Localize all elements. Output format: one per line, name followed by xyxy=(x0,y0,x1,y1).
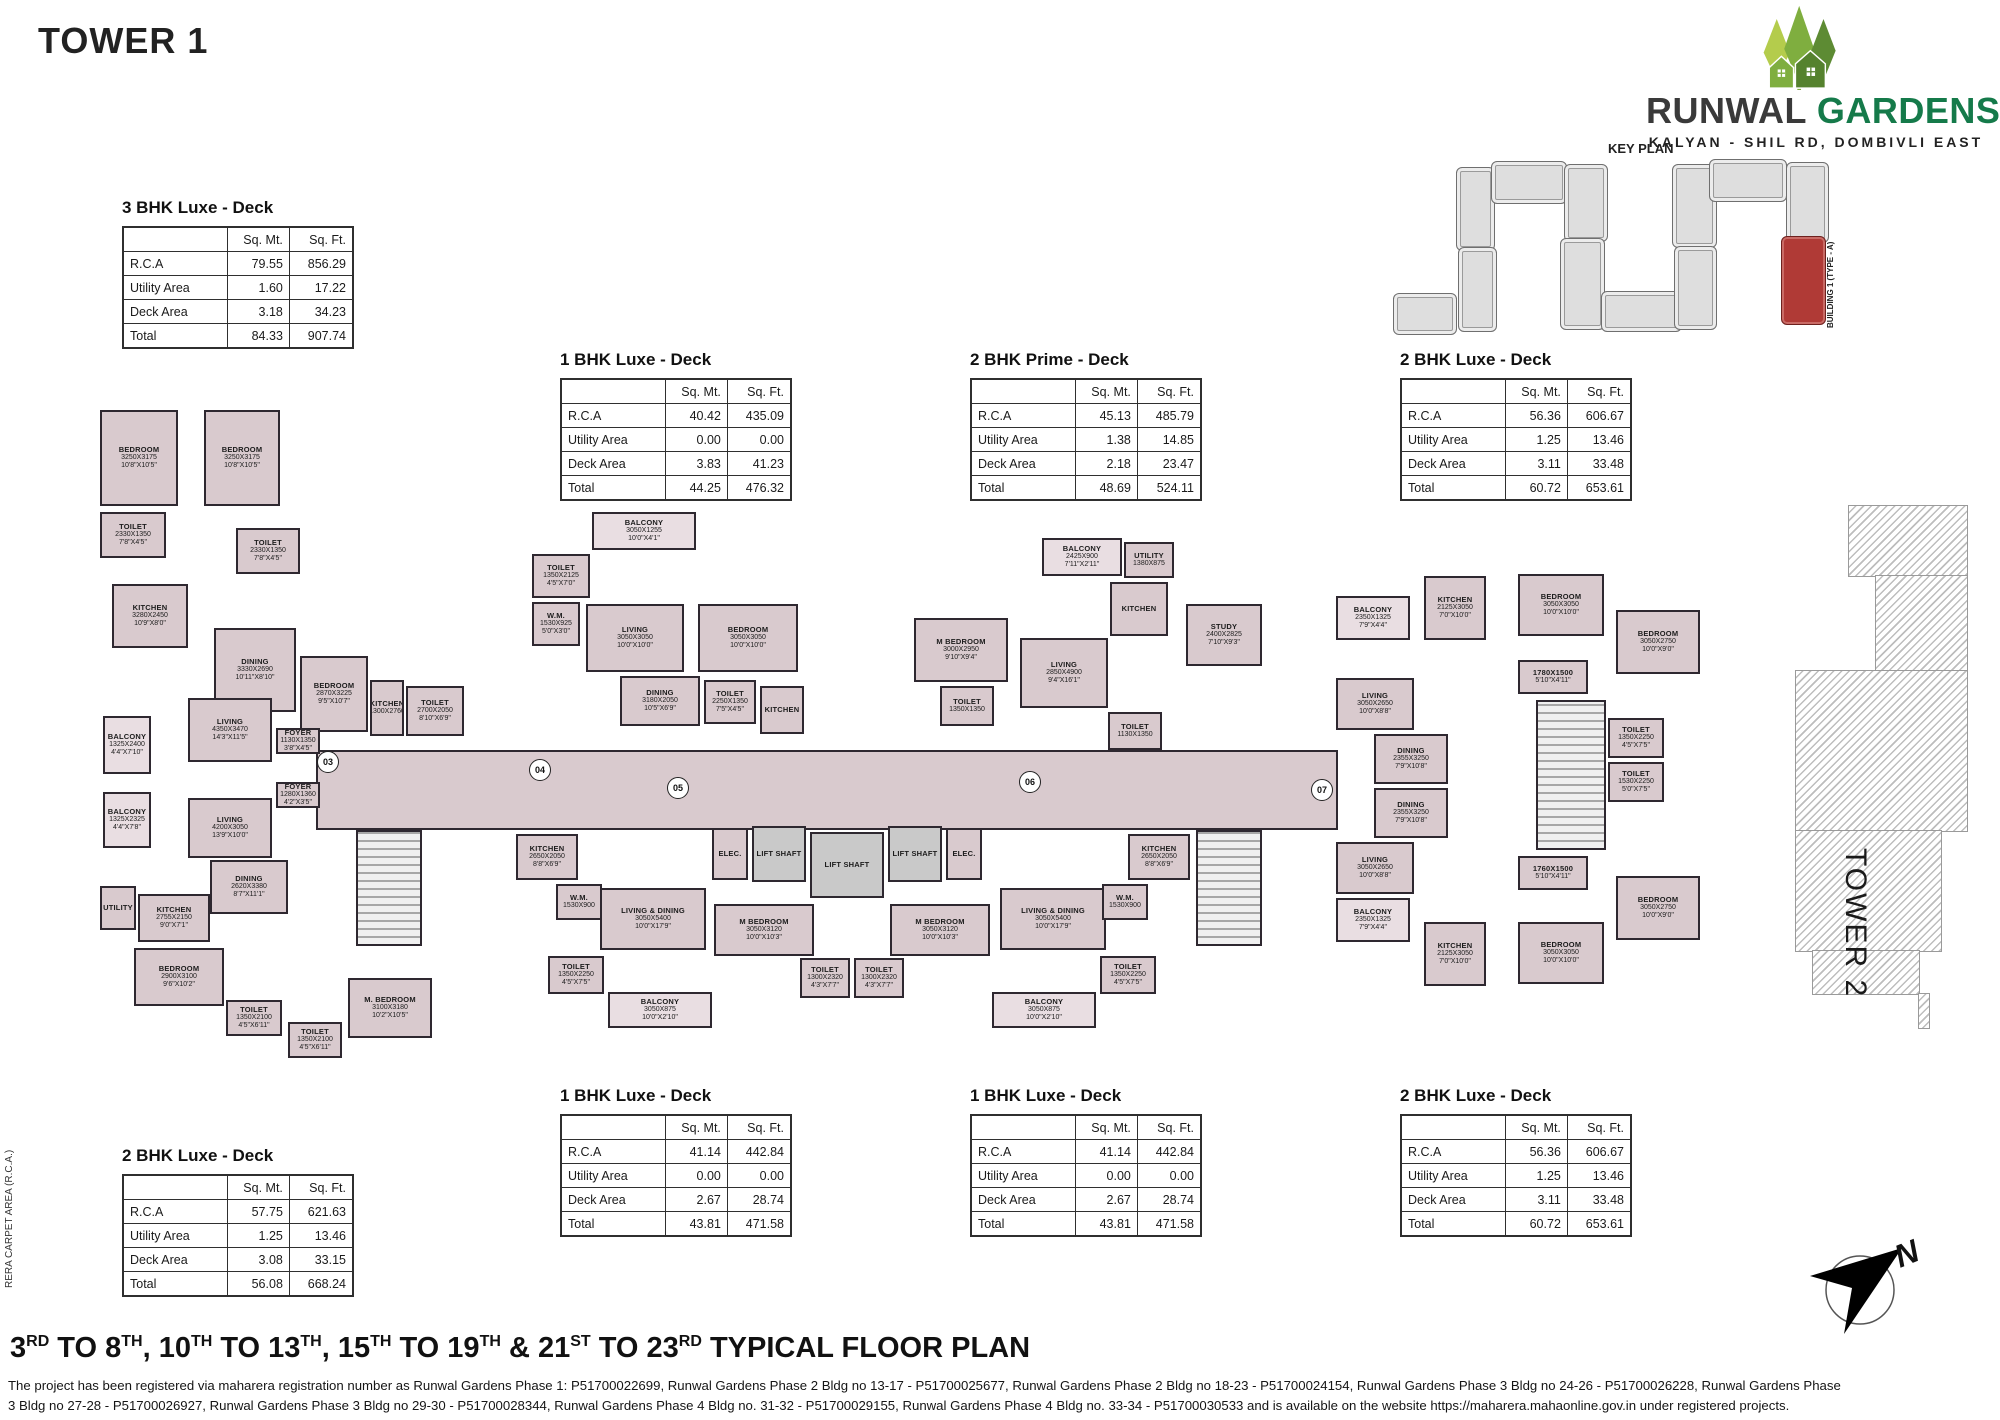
floor-title-segment: TO 13 xyxy=(212,1332,300,1364)
kitchen-room: KITCHEN2125X30507'0"X10'0" xyxy=(1424,576,1486,640)
rera-legal-text: The project has been registered via maha… xyxy=(8,1376,1996,1417)
floor-title-segment: TO 8 xyxy=(49,1332,121,1364)
kitchen-room: KITCHEN2125X30507'0"X10'0" xyxy=(1424,922,1486,986)
utility-room: UTILITY xyxy=(100,886,136,930)
floor-title-segment: 3 xyxy=(10,1332,26,1364)
toilet-room: TOILET1350X21004'5"X6'11" xyxy=(288,1022,342,1058)
bedroom-room: BEDROOM3050X305010'0"X10'0" xyxy=(698,604,798,672)
kitchen-room: KITCHEN2650X20508'8"X6'9" xyxy=(1128,834,1190,880)
rera-legal-line2: 3 Bldg no 27-28 - P51700026927, Runwal G… xyxy=(8,1396,1996,1416)
foyer-room: FOYER1130X13503'8"X4'5" xyxy=(276,728,320,754)
corridor xyxy=(316,750,1338,830)
balcony-room: BALCONY2350X13257'9"X4'4" xyxy=(1336,596,1410,640)
lift-shaft-room: LIFT SHAFT xyxy=(888,826,942,882)
living-room: LIVING3050X305010'0"X10'0" xyxy=(586,604,684,672)
toilet-room: TOILET1350X21254'5"X7'0" xyxy=(532,554,590,598)
1760x1500-room: 1760X15005'10"X4'11" xyxy=(1518,856,1588,890)
tower2-hatch-area xyxy=(1848,505,1968,577)
floor-title-segment: & 21 xyxy=(501,1332,570,1364)
toilet-room: TOILET1350X22504'5"X7'5" xyxy=(1608,718,1664,758)
dining-room: DINING2355X32507'9"X10'8" xyxy=(1374,734,1448,784)
living-dining-room: LIVING & DINING3050X540010'0"X17'9" xyxy=(1000,888,1106,950)
rera-carpet-area-note: RERA CARPET AREA (R.C.A.) xyxy=(4,1128,15,1288)
staircase xyxy=(356,830,422,946)
typical-floor-plan-title: 3RD TO 8TH, 10TH TO 13TH, 15TH TO 19TH &… xyxy=(10,1332,1030,1365)
living-dining-room: LIVING & DINING3050X540010'0"X17'9" xyxy=(600,888,706,950)
bedroom-room: BEDROOM3050X275010'0"X9'0" xyxy=(1616,876,1700,940)
toilet-room: TOILET2330X13507'8"X4'5" xyxy=(236,528,300,574)
floor-title-superscript: TH xyxy=(191,1333,212,1350)
utility-room: UTILITY1380X875 xyxy=(1124,542,1174,578)
north-compass-icon: N xyxy=(1796,1218,1946,1358)
living-room: LIVING2850X49009'4"X16'1" xyxy=(1020,638,1108,708)
lift-shaft-room: LIFT SHAFT xyxy=(810,832,884,898)
floor-title-segment: TYPICAL FLOOR PLAN xyxy=(702,1332,1030,1364)
1780x1500-room: 1780X15005'10"X4'11" xyxy=(1518,660,1588,694)
toilet-room: TOILET2330X13507'8"X4'5" xyxy=(100,512,166,558)
staircase xyxy=(1536,700,1606,850)
unit-number-marker: 06 xyxy=(1019,771,1041,793)
bedroom-room: BEDROOM2900X31009'6"X10'2" xyxy=(134,948,224,1006)
elec-room: ELEC. xyxy=(712,828,748,880)
bedroom-room: BEDROOM3050X305010'0"X10'0" xyxy=(1518,922,1604,984)
toilet-room: TOILET1350X22504'5"X7'5" xyxy=(1100,956,1156,994)
lift-shaft-room: LIFT SHAFT xyxy=(752,826,806,882)
floor-title-segment: , 10 xyxy=(143,1332,191,1364)
floor-title-superscript: TH xyxy=(300,1333,321,1350)
toilet-room: TOILET1530X22505'0"X7'5" xyxy=(1608,762,1664,802)
toilet-room: TOILET1350X1350 xyxy=(940,686,994,726)
m-bedroom-room: M BEDROOM3050X312010'0"X10'3" xyxy=(890,904,990,956)
kitchen-room: KITCHEN2650X20508'8"X6'9" xyxy=(516,834,578,880)
balcony-room: BALCONY2425X9007'11"X2'11" xyxy=(1042,538,1122,576)
floor-plan-drawing: BEDROOM3250X317510'8"X10'5"BEDROOM3250X3… xyxy=(0,0,2000,1420)
unit-number-marker: 07 xyxy=(1311,779,1333,801)
balcony-room: BALCONY1325X23254'4"X7'8" xyxy=(103,792,151,848)
w-m-room: W.M.1530X900 xyxy=(1102,884,1148,920)
kitchen-room: KITCHEN1300X2760 xyxy=(370,680,404,736)
living-room: LIVING4350X347014'3"X11'5" xyxy=(188,698,272,762)
floor-title-superscript: RD xyxy=(26,1333,49,1350)
toilet-room: TOILET1350X22504'5"X7'5" xyxy=(548,956,604,994)
floor-title-segment: , 15 xyxy=(322,1332,370,1364)
kitchen-room: KITCHEN3280X245010'9"X8'0" xyxy=(112,584,188,648)
m-bedroom-room: M BEDROOM3050X312010'0"X10'3" xyxy=(714,904,814,956)
balcony-room: BALCONY2350X13257'9"X4'4" xyxy=(1336,898,1410,942)
bedroom-room: BEDROOM3050X275010'0"X9'0" xyxy=(1616,610,1700,674)
staircase xyxy=(1196,830,1262,946)
balcony-room: BALCONY3050X87510'0"X2'10" xyxy=(992,992,1096,1028)
floor-title-superscript: TH xyxy=(480,1333,501,1350)
balcony-room: BALCONY3050X125510'0"X4'1" xyxy=(592,512,696,550)
kitchen-room: KITCHEN xyxy=(760,686,804,734)
toilet-room: TOILET1130X1350 xyxy=(1108,712,1162,750)
kitchen-room: KITCHEN2755X21509'0"X7'1" xyxy=(138,894,210,942)
foyer-room: FOYER1280X13604'2"X3'5" xyxy=(276,782,320,808)
floor-title-segment: TO 19 xyxy=(391,1332,479,1364)
study-room: STUDY2400X28257'10"X9'3" xyxy=(1186,604,1262,666)
dining-room: DINING2620X33808'7"X11'1" xyxy=(210,860,288,914)
unit-number-marker: 03 xyxy=(317,751,339,773)
toilet-room: TOILET2250X13507'5"X4'5" xyxy=(704,680,756,724)
toilet-room: TOILET1300X23204'3"X7'7" xyxy=(800,958,850,998)
tower2-hatch-area xyxy=(1875,575,1968,672)
floor-title-segment: TO 23 xyxy=(591,1332,679,1364)
floor-title-superscript: ST xyxy=(570,1333,590,1350)
living-room: LIVING4200X305013'9"X10'0" xyxy=(188,798,272,858)
m-bedroom-room: M. BEDROOM3100X318010'2"X10'5" xyxy=(348,978,432,1038)
floor-title-superscript: RD xyxy=(679,1333,702,1350)
tower2-hatch-area xyxy=(1795,670,1968,832)
dining-room: DINING3180X205010'5"X6'9" xyxy=(620,676,700,726)
unit-number-marker: 04 xyxy=(529,759,551,781)
compass-north-label: N xyxy=(1889,1232,1925,1274)
balcony-room: BALCONY3050X87510'0"X2'10" xyxy=(608,992,712,1028)
toilet-room: TOILET1350X21004'5"X6'11" xyxy=(226,1000,282,1036)
tower2-hatch-area xyxy=(1918,993,1930,1029)
bedroom-room: BEDROOM3250X317510'8"X10'5" xyxy=(100,410,178,506)
kitchen-room: KITCHEN xyxy=(1110,582,1168,636)
w-m-room: W.M.1530X9255'0"X3'0" xyxy=(532,602,580,646)
m-bedroom-room: M BEDROOM3000X29509'10"X9'4" xyxy=(914,618,1008,682)
toilet-room: TOILET2700X20508'10"X6'9" xyxy=(406,686,464,736)
living-room: LIVING3050X265010'0"X8'8" xyxy=(1336,842,1414,894)
floor-title-superscript: TH xyxy=(370,1333,391,1350)
unit-number-marker: 05 xyxy=(667,777,689,799)
living-room: LIVING3050X265010'0"X8'8" xyxy=(1336,678,1414,730)
bedroom-room: BEDROOM3050X305010'0"X10'0" xyxy=(1518,574,1604,636)
elec-room: ELEC. xyxy=(946,828,982,880)
dining-room: DINING2355X32507'9"X10'8" xyxy=(1374,788,1448,838)
floor-plan-sheet: TOWER 1 RUNWAL GARDENS KALYAN - SHIL RD,… xyxy=(0,0,2000,1420)
floor-title-superscript: TH xyxy=(121,1333,142,1350)
balcony-room: BALCONY1325X24004'4"X7'10" xyxy=(103,716,151,774)
bedroom-room: BEDROOM2870X32259'5"X10'7" xyxy=(300,656,368,732)
rera-legal-line1: The project has been registered via maha… xyxy=(8,1376,1996,1396)
toilet-room: TOILET1300X23204'3"X7'7" xyxy=(854,958,904,998)
w-m-room: W.M.1530X900 xyxy=(556,884,602,920)
bedroom-room: BEDROOM3250X317510'8"X10'5" xyxy=(204,410,280,506)
tower2-label: TOWER 2 xyxy=(1838,848,1872,998)
